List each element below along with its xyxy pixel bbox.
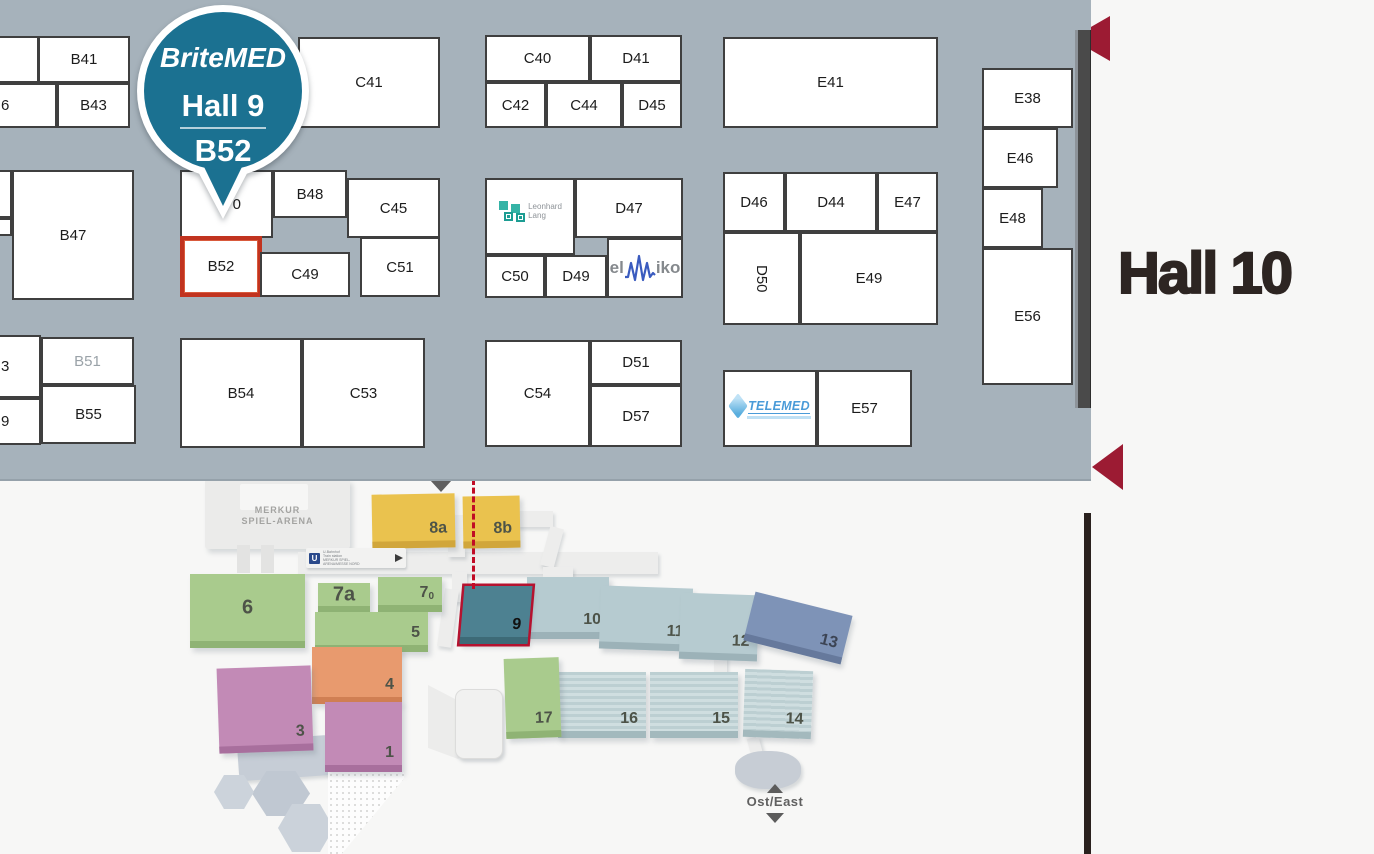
telemed-logo: TELEMED xyxy=(729,398,811,419)
booth-d49[interactable]: D49 xyxy=(545,255,607,298)
ecg-wave-icon xyxy=(624,253,656,283)
booth-e56[interactable]: E56 xyxy=(982,248,1073,385)
leonhard-lang-icon xyxy=(498,199,524,221)
booth-c41[interactable]: C41 xyxy=(298,37,440,128)
hall-17[interactable]: 17 xyxy=(504,657,562,739)
booth-c51[interactable]: C51 xyxy=(360,237,440,297)
booth-b41[interactable]: B41 xyxy=(38,36,130,83)
hall-14[interactable]: 14 xyxy=(743,669,813,739)
fair-hall-locator: B416B43C41C40D41C42C44D45E41E38E46E48E56… xyxy=(0,0,1374,854)
booth-c53[interactable]: C53 xyxy=(302,338,425,448)
pin-hall-text: Hall 9 xyxy=(182,88,265,123)
hall9-locator-dashes xyxy=(472,479,475,589)
hall-7a[interactable]: 7a xyxy=(318,583,370,613)
booth-c50[interactable]: C50 xyxy=(485,255,545,298)
cut-booth-3[interactable]: 3 xyxy=(0,335,41,398)
hall-16[interactable]: 16 xyxy=(558,672,646,738)
hall-10[interactable]: 10 xyxy=(527,577,609,639)
booth-e48[interactable]: E48 xyxy=(982,188,1043,248)
site-overview-map: MERKURSPIEL-ARENA 8a8b67a705101112131615… xyxy=(0,479,1374,854)
booth-c40[interactable]: C40 xyxy=(485,35,590,82)
cut-booth-left-b[interactable] xyxy=(0,218,12,236)
booth-e46[interactable]: E46 xyxy=(982,128,1058,188)
booth-leonhard-lang[interactable]: LeonhardLang xyxy=(485,178,575,255)
booth-b47[interactable]: B47 xyxy=(12,170,134,300)
booth-e49[interactable]: E49 xyxy=(800,232,938,325)
pin-booth-text: B52 xyxy=(195,133,252,168)
hall-8a[interactable]: 8a xyxy=(372,493,456,548)
britemed-logo: BriteMED xyxy=(160,42,286,73)
cut-booth-6[interactable]: 6 xyxy=(0,83,57,128)
booth-b54[interactable]: B54 xyxy=(180,338,302,448)
booth-telemed[interactable]: TELEMED xyxy=(723,370,817,447)
hall-13[interactable]: 13 xyxy=(743,592,852,665)
ubahn-sign-text: U-BahnhofTrain station MERKUR SPIEL-AREN… xyxy=(323,550,392,566)
ubahn-icon: U xyxy=(309,553,320,564)
north-entrance-arrow-icon xyxy=(430,480,452,492)
cut-booth-9[interactable]: 9 xyxy=(0,398,41,445)
booth-d44[interactable]: D44 xyxy=(785,172,877,232)
hall-9[interactable]: 9 xyxy=(459,586,532,644)
booth-b52[interactable]: B52 xyxy=(180,236,262,297)
arena-label: MERKURSPIEL-ARENA xyxy=(205,505,350,527)
hall-4[interactable]: 4 xyxy=(312,647,402,704)
booth-c45[interactable]: C45 xyxy=(347,178,440,238)
booth-e47[interactable]: E47 xyxy=(877,172,938,232)
britemed-hall9-pin: BriteMED Hall 9 B52 xyxy=(128,3,318,238)
corridor xyxy=(517,511,553,527)
hall-divider-wall xyxy=(1075,30,1091,408)
hall-6[interactable]: 6 xyxy=(190,574,305,648)
hall-3[interactable]: 3 xyxy=(217,665,314,753)
merkur-spiel-arena: MERKURSPIEL-ARENA xyxy=(205,479,350,549)
booth-c42[interactable]: C42 xyxy=(485,82,546,128)
hall-15[interactable]: 15 xyxy=(650,672,738,738)
booth-e57[interactable]: E57 xyxy=(817,370,912,447)
leonhard-lang-logo: LeonhardLang xyxy=(498,199,562,221)
booth-d46[interactable]: D46 xyxy=(723,172,785,232)
booth-d51[interactable]: D51 xyxy=(590,340,682,385)
ubahn-sign: U U-BahnhofTrain station MERKUR SPIEL-AR… xyxy=(306,548,406,568)
booth-e38[interactable]: E38 xyxy=(982,68,1073,128)
booth-b55[interactable]: B55 xyxy=(41,385,136,444)
hall10-label: Hall 10 xyxy=(1118,240,1291,307)
cut-booth-top-left[interactable] xyxy=(0,36,39,83)
hall-1[interactable]: 1 xyxy=(325,702,402,772)
booth-d41[interactable]: D41 xyxy=(590,35,682,82)
direction-arrow-icon xyxy=(395,554,403,562)
cut-booth-left-a[interactable] xyxy=(0,170,12,218)
telemed-diamond-icon xyxy=(728,393,747,419)
arena-leg xyxy=(237,545,250,573)
booth-c49[interactable]: C49 xyxy=(260,252,350,297)
arena-leg xyxy=(261,545,274,573)
hall-5[interactable]: 5 xyxy=(315,612,428,652)
arrow-up-icon xyxy=(767,784,783,793)
telemed-tagline xyxy=(747,416,811,419)
booth-e41[interactable]: E41 xyxy=(723,37,938,128)
arrow-down-icon xyxy=(766,813,784,823)
booth-b51[interactable]: B51 xyxy=(41,337,134,385)
tower-building xyxy=(455,689,503,759)
hall-7.0[interactable]: 70 xyxy=(378,577,442,612)
booth-d47[interactable]: D47 xyxy=(575,178,683,238)
elmiko-logo: eliko xyxy=(610,253,681,283)
booth-c44[interactable]: C44 xyxy=(546,82,622,128)
east-exit-label: Ost/East xyxy=(725,784,825,823)
booth-d45[interactable]: D45 xyxy=(622,82,682,128)
booth-b43[interactable]: B43 xyxy=(57,83,130,128)
booth-d57[interactable]: D57 xyxy=(590,385,682,447)
hatched-area xyxy=(328,772,404,854)
booth-elmiko[interactable]: eliko xyxy=(607,238,683,298)
booth-d50[interactable]: D50 xyxy=(723,232,800,325)
booth-c54[interactable]: C54 xyxy=(485,340,590,447)
